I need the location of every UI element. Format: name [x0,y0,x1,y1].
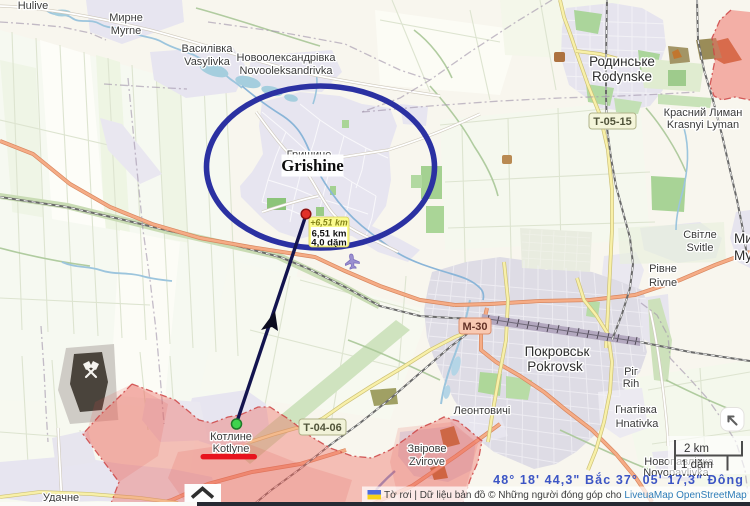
svg-text:Rodynske: Rodynske [592,69,652,84]
svg-text:Котлине: Котлине [210,431,252,443]
svg-text:Rivne: Rivne [649,277,677,289]
svg-text:Ріг: Ріг [624,366,638,378]
svg-text:Hulive: Hulive [18,0,49,12]
svg-text:Красний Лиман: Красний Лиман [664,107,743,119]
svg-text:Мирне: Мирне [109,12,143,24]
svg-text:Леонтовичі: Леонтовичі [454,405,511,417]
svg-text:Т-04-06: Т-04-06 [303,422,342,434]
svg-text:Kotlyne: Kotlyne [213,443,250,455]
svg-text:Новоолександрівка: Новоолександрівка [237,52,337,64]
svg-text:48° 18' 44,3" Bắc 37° 05': 48° 18' 44,3" Bắc 37° 05' 17,3" Đông [493,472,744,487]
svg-text:Myrne: Myrne [111,25,142,37]
svg-text:Novooleksandrivka: Novooleksandrivka [240,65,334,77]
svg-text:Pokrovsk: Pokrovsk [527,359,583,374]
svg-text:Василівка: Василівка [182,43,234,55]
svg-text:4,0 dặm: 4,0 dặm [311,238,346,249]
svg-text:Hnativka: Hnativka [616,418,660,430]
svg-text:Покровськ: Покровськ [525,344,590,359]
svg-text:Grishine: Grishine [281,156,344,175]
svg-text:М-30: М-30 [462,321,487,333]
svg-text:Світле: Світле [683,229,717,241]
svg-text:1 dặm: 1 dặm [681,459,713,471]
svg-text:Родинське: Родинське [589,54,655,69]
svg-text:Krasnyi Lyman: Krasnyi Lyman [667,119,739,131]
svg-text:Рівне: Рівне [649,263,677,275]
svg-text:Звірове: Звірове [407,443,446,455]
svg-text:Zvirove: Zvirove [409,456,445,468]
svg-text:Svitle: Svitle [687,242,714,254]
svg-text:Т-05-15: Т-05-15 [593,116,632,128]
svg-text:Мирноград: Мирноград [734,231,750,246]
svg-text:Vasylivka: Vasylivka [184,56,231,68]
svg-text:Мунхоград: Мунхоград [734,248,750,263]
svg-text:+6,51 km: +6,51 km [310,218,348,228]
svg-text:2 km: 2 km [684,443,709,455]
svg-text:Гнатівка: Гнатівка [615,404,658,416]
svg-text:Rih: Rih [623,378,640,390]
svg-text:Tờ rơi | Dữ liệu bản đồ © Nhữn: Tờ rơi | Dữ liệu bản đồ © Những người đó… [384,489,747,501]
